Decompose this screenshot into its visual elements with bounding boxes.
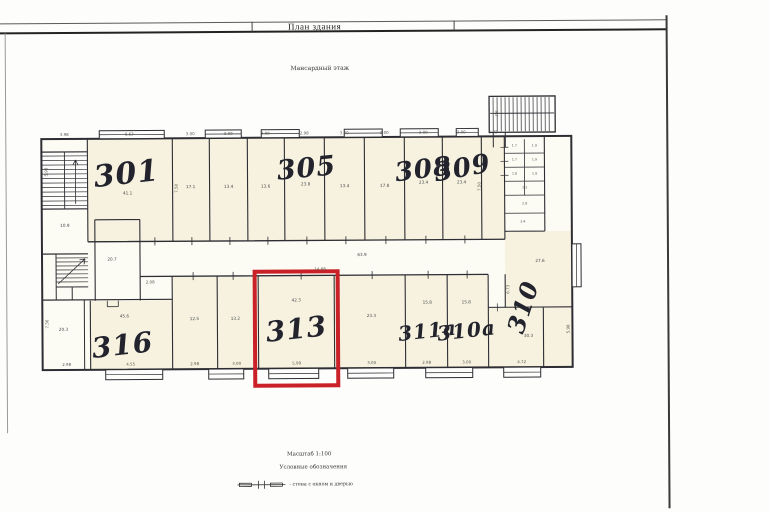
room-number-label: 313 [264, 312, 328, 347]
dimension-label: 13.4 [224, 185, 233, 189]
dimension-label: 13.4 [340, 184, 349, 188]
dimension-label: 23.4 [457, 180, 466, 184]
dimension-label: 7.36 [45, 320, 49, 329]
dimension-label: 23.4 [419, 181, 428, 185]
scanned-floor-plan-page: План здания Мансардный этаж [0, 0, 770, 512]
dimension-label: 3.00 [457, 131, 466, 135]
dimension-label: 1.7 [512, 159, 517, 162]
dimension-label: 3.00 [419, 131, 428, 135]
dimension-label: 41.1 [123, 191, 132, 195]
dimension-label: 45.6 [120, 314, 129, 318]
dimension-label: 14.68 [314, 267, 325, 271]
dimension-label: 3.00 [224, 132, 233, 136]
dimension-label: 7.50 [175, 184, 179, 193]
legend-heading: Условные обозначения [279, 464, 347, 470]
dimension-label: 2.98 [300, 131, 309, 135]
room-number-label: 305 [276, 152, 338, 184]
dimension-label: 17.8 [380, 184, 389, 188]
dimension-label: 3.00 [186, 132, 195, 136]
dimension-label: ЛК [495, 110, 499, 116]
dimension-label: 20.3 [59, 328, 68, 332]
dimension-label: 10.9 [60, 224, 69, 228]
dimension-label: 3.00 [261, 132, 270, 136]
wall-window-door-symbol [237, 480, 285, 490]
dimension-label: 13.2 [231, 317, 240, 321]
dimension-label: 1.9 [532, 158, 537, 161]
dimension-label: 27.6 [535, 259, 544, 263]
dimension-label: 2.08 [146, 280, 155, 284]
dimension-label: 1.8 [512, 173, 517, 176]
scale-note: Масштаб 1:100 [287, 451, 331, 457]
dimension-label: 5.03 [489, 130, 498, 134]
dimension-label: 63.9 [357, 253, 366, 257]
dimension-label: 3.00 [462, 360, 471, 364]
legend-row: - стена с окном и дверью [237, 479, 352, 490]
dimension-label: 3.4 [520, 221, 525, 224]
dimension-label: 23.8 [301, 182, 310, 186]
dimension-label: 20.7 [107, 258, 116, 262]
dimension-label: 6.73 [506, 285, 510, 294]
dimension-label: 3.00 [340, 131, 349, 135]
dimension-label: 5.99 [292, 362, 301, 366]
dimension-label: 2.8 [522, 203, 527, 206]
dimension-label: 2.98 [62, 363, 71, 367]
dimension-label: 15.8 [462, 300, 471, 304]
dimension-label: 3.00 [380, 131, 389, 135]
dimension-label: 1.9 [532, 144, 537, 147]
dimension-label: 3.00 [367, 361, 376, 365]
room-number-label: 316 [90, 328, 154, 363]
dimension-label: 3.98 [60, 133, 69, 137]
dimension-label: 23.3 [367, 314, 376, 318]
dimension-label: 2.98 [422, 361, 431, 365]
dimension-label: 5.98 [566, 324, 570, 333]
legend-item-label: - стена с окном и дверью [289, 482, 352, 487]
dimension-label: 3.3 [522, 187, 527, 190]
dimension-label: 1.7 [512, 145, 517, 148]
dimension-label: 6.63 [125, 133, 134, 137]
dimension-label: 2.98 [190, 362, 199, 366]
dimension-label: 15.8 [423, 301, 432, 305]
label-layer: 301305308309316313311а310а3103.986.633.0… [0, 0, 770, 512]
dimension-label: 7.50 [478, 182, 482, 191]
dimension-label: 4.55 [126, 363, 135, 367]
dimension-label: 5.98 [44, 168, 48, 177]
dimension-label: 4.72 [517, 360, 526, 364]
dimension-label: 17.1 [186, 185, 195, 189]
dimension-label: 30.3 [524, 334, 533, 338]
dimension-label: 3.00 [232, 362, 241, 366]
dimension-label: 12.5 [190, 317, 199, 321]
room-number-label: 301 [92, 156, 161, 193]
dimension-label: 13.6 [261, 185, 270, 189]
dimension-label: 1.9 [532, 172, 537, 175]
dimension-label: 42.3 [292, 298, 301, 302]
room-number-label: 310а [436, 317, 497, 343]
